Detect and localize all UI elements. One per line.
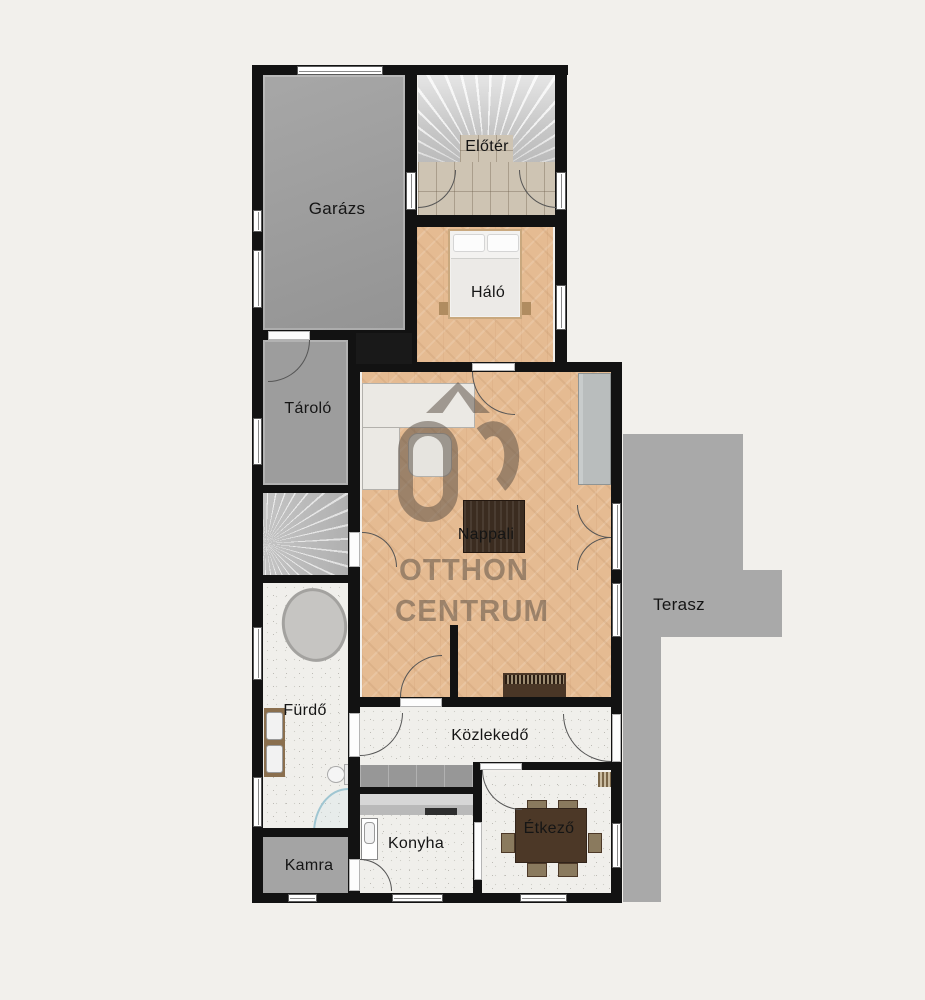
wall-bath-bottom <box>252 828 360 837</box>
room-label-kamra: Kamra <box>285 857 334 875</box>
dining-chair <box>527 863 547 877</box>
room-label-konyha: Konyha <box>388 835 444 853</box>
terrace-area-strip <box>623 637 661 902</box>
dining-chair <box>501 833 515 853</box>
wall-kitchen-top <box>348 787 480 794</box>
corridor-wardrobe <box>360 765 473 787</box>
door-living-corridor <box>400 698 442 707</box>
wall-sofa <box>578 373 611 485</box>
nightstand <box>522 302 531 315</box>
room-label-halo: Háló <box>471 284 505 302</box>
watermark-line1: OTTHON <box>399 552 529 588</box>
window-entry-left <box>406 172 416 210</box>
room-label-nappali: Nappali <box>458 526 514 544</box>
window-garage-2 <box>253 250 262 308</box>
floor-plan: OTTHON CENTRUM Garázs Előtér Háló Tároló… <box>0 0 925 1000</box>
french-door-terrace <box>612 503 621 570</box>
door-corridor-dining <box>480 763 522 770</box>
window-kitchen-bottom <box>392 894 443 902</box>
room-label-eloter: Előtér <box>465 138 509 156</box>
window-dining <box>612 823 621 868</box>
bed-pillow <box>453 234 485 252</box>
room-label-furdo: Fürdő <box>283 702 326 720</box>
wall-stub-living <box>450 625 458 700</box>
passage-kitchen-dining <box>474 822 482 880</box>
terrace-area <box>623 434 743 570</box>
window-garage-1 <box>253 210 262 232</box>
watermark-line2: CENTRUM <box>395 593 549 629</box>
vanity-sink <box>266 712 283 740</box>
room-label-etkezo: Étkező <box>524 820 575 838</box>
logo-letter-o <box>398 421 458 522</box>
cooktop <box>425 808 457 815</box>
radiator <box>598 772 612 787</box>
kitchen-sink-basin <box>364 822 375 844</box>
door-bedroom-living <box>472 363 515 371</box>
window-bath-1 <box>253 627 262 680</box>
room-label-garazs: Garázs <box>309 199 366 219</box>
window-bath-2 <box>253 777 262 827</box>
wall-storage-bottom <box>252 485 360 493</box>
room-label-kozlekedo: Közlekedő <box>451 727 528 745</box>
room-label-tarolo: Tároló <box>284 400 331 418</box>
window-bedroom <box>556 285 566 330</box>
door-stair-living <box>349 532 360 567</box>
wall-living-bottom <box>348 697 622 707</box>
wall-entry-bottom <box>405 215 567 227</box>
room-label-terasz: Terasz <box>653 595 705 615</box>
wall-stair-bottom <box>252 575 360 583</box>
window-entry-right <box>556 172 566 210</box>
dining-chair <box>558 863 578 877</box>
bed-pillow <box>487 234 519 252</box>
window-living-terrace <box>612 583 621 637</box>
door-garage-storage <box>268 331 310 340</box>
wall-mid-vertical <box>348 335 360 903</box>
window-dining-bottom <box>520 894 567 902</box>
staircase-floor <box>263 492 348 575</box>
tv-stand-top <box>505 675 564 684</box>
door-bath-corridor <box>349 713 360 757</box>
chimney-block <box>356 333 412 364</box>
garage-door-band <box>297 66 383 75</box>
nightstand <box>439 302 448 315</box>
toilet-bowl <box>327 766 345 783</box>
dining-chair <box>588 833 602 853</box>
door-corridor-terrace <box>612 714 621 762</box>
window-storage <box>253 418 262 465</box>
vanity-sink <box>266 745 283 773</box>
door-pantry-kitchen <box>349 859 360 891</box>
window-pantry-bottom <box>288 894 317 902</box>
